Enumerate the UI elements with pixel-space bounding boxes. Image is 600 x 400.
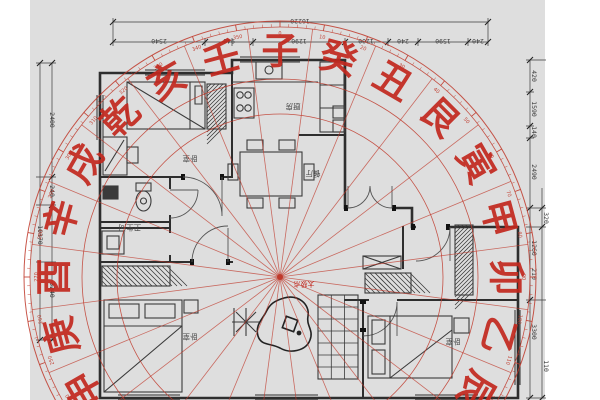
dim-left-segment: 2400 bbox=[48, 112, 56, 128]
taiji-center-label: 太极点 bbox=[294, 280, 315, 289]
room-label-bedroom-2: 卧室 bbox=[182, 332, 197, 342]
dim-top-segment: 1590 bbox=[435, 37, 451, 45]
dim-top-segment: 240 bbox=[397, 37, 409, 45]
washer bbox=[103, 186, 118, 199]
dim-right-segment: 1590 bbox=[530, 101, 538, 117]
taiji-center-point bbox=[277, 274, 283, 280]
room-label-kitchen: 厨房 bbox=[286, 102, 301, 112]
luopan-floorplan-image: 1022025409401290120024015902401037024002… bbox=[0, 0, 600, 400]
mountain-char-0: 子 bbox=[262, 30, 299, 73]
dim-top-segment: 2540 bbox=[151, 37, 167, 45]
dim-right-segment: 320 bbox=[542, 212, 550, 224]
dim-right-segment: 140 bbox=[530, 126, 538, 138]
room-label-bedroom-3: 卧室 bbox=[445, 337, 460, 347]
dim-right-segment: 110 bbox=[542, 360, 550, 372]
dim-right-segment: 210 bbox=[530, 268, 538, 280]
dim-top-segment: 240 bbox=[472, 37, 484, 45]
plant bbox=[232, 308, 260, 336]
mountain-char-90: 卯 bbox=[485, 259, 528, 296]
room-label-dining: 餐厅 bbox=[305, 169, 320, 178]
dim-right-segment: 420 bbox=[530, 70, 538, 82]
floorplan-canvas: 1022025409401290120024015902401037024002… bbox=[0, 0, 600, 400]
mountain-char-270: 酉 bbox=[33, 259, 76, 296]
room-label-bathroom: 卫生间 bbox=[119, 223, 142, 233]
dim-right-segment: 2490 bbox=[530, 164, 538, 180]
